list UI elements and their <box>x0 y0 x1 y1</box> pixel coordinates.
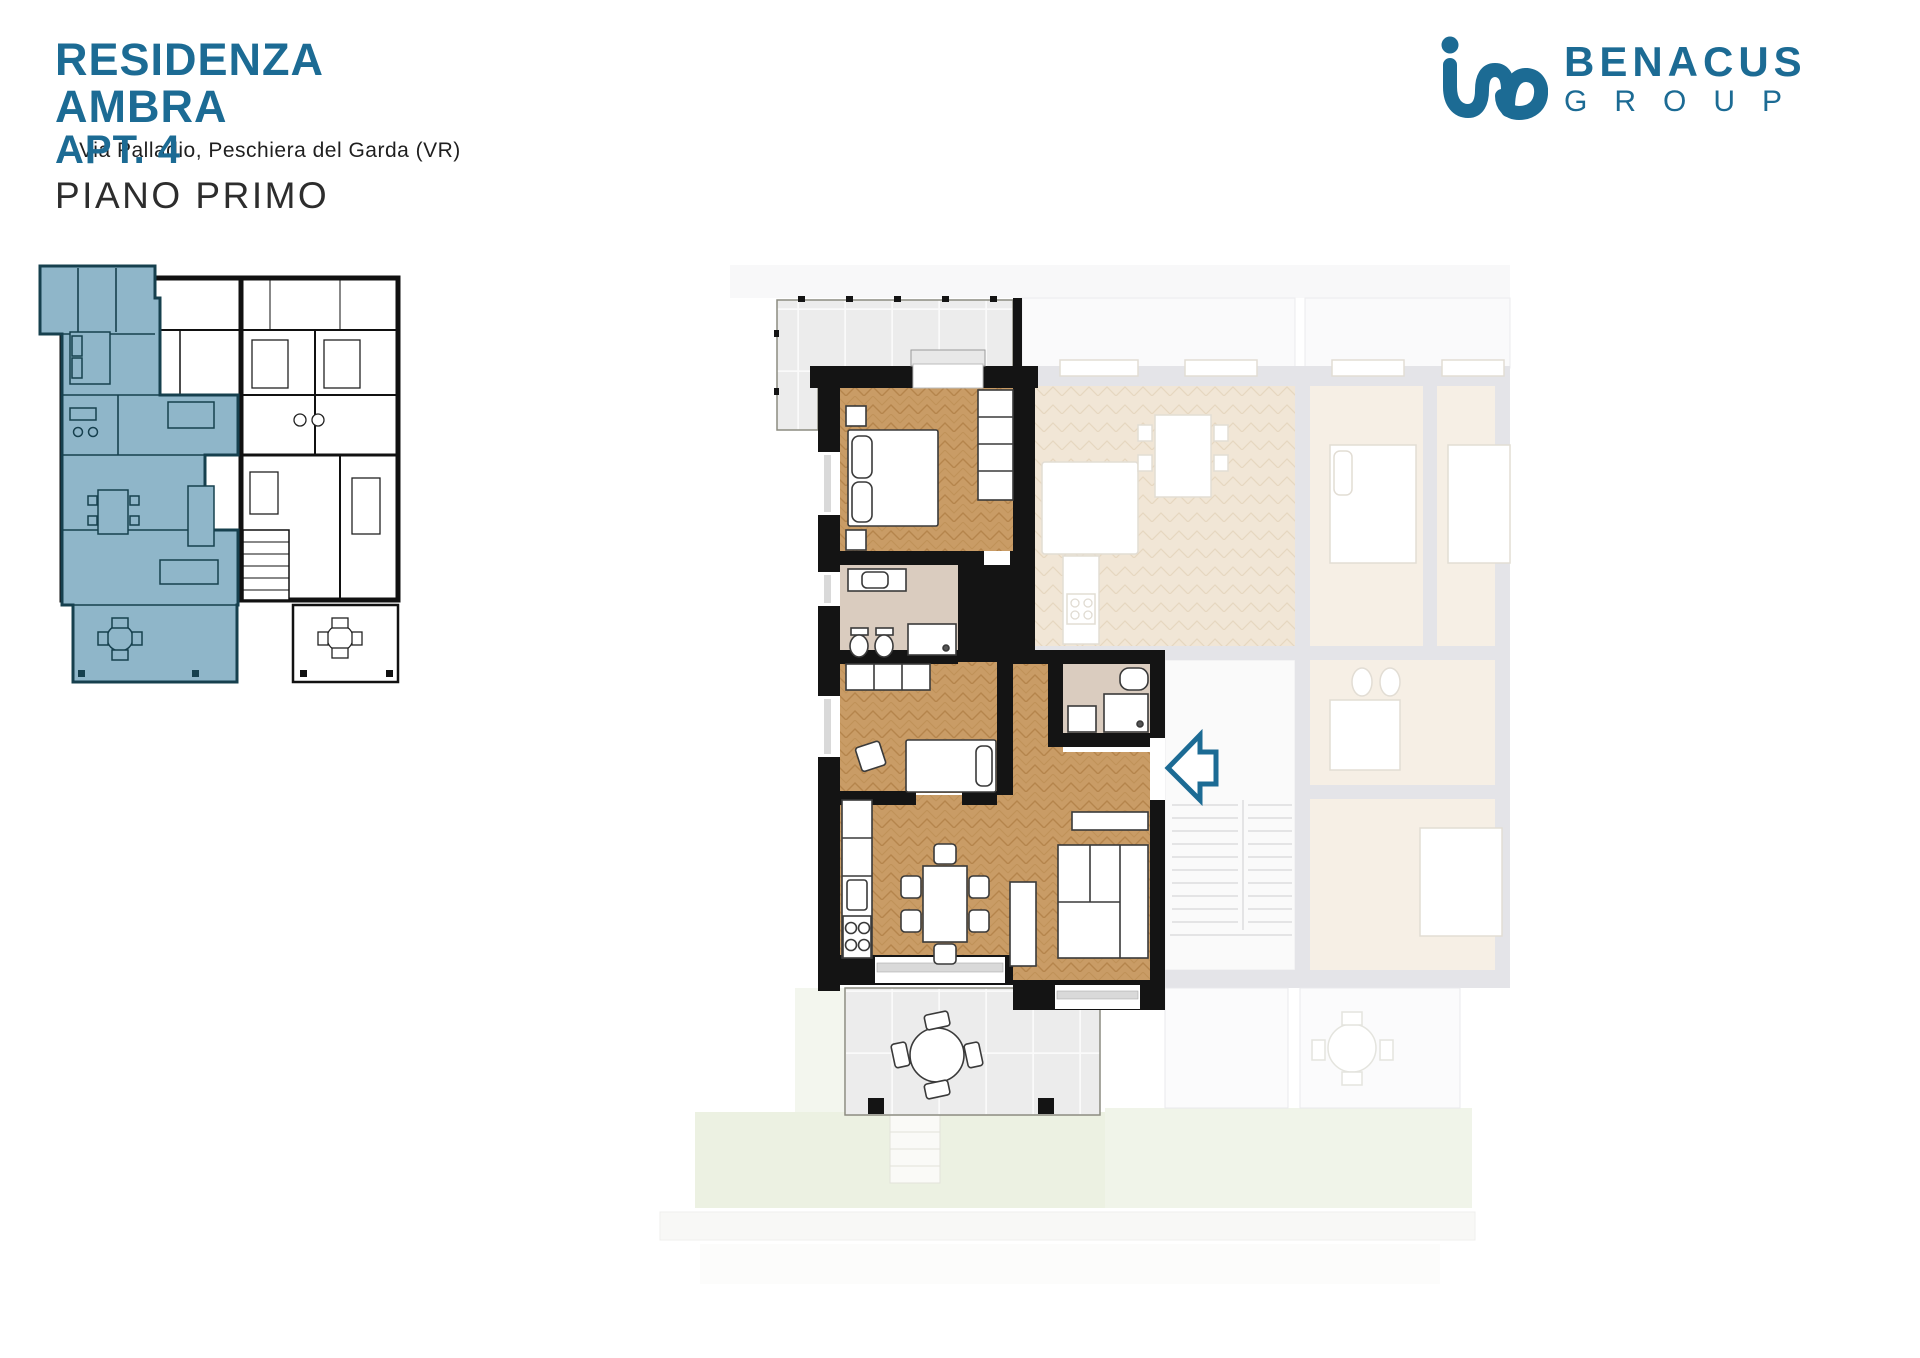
detail-plan <box>660 265 1510 1284</box>
overview-plan <box>40 266 398 682</box>
entrance-door-gap <box>1150 738 1165 800</box>
brochure-page: RESIDENZA AMBRA Via Palladio, Peschiera … <box>0 0 1920 1358</box>
floor-plans <box>0 0 1920 1358</box>
overview-stairs <box>243 530 289 600</box>
ghost-roof-band <box>730 265 1510 298</box>
